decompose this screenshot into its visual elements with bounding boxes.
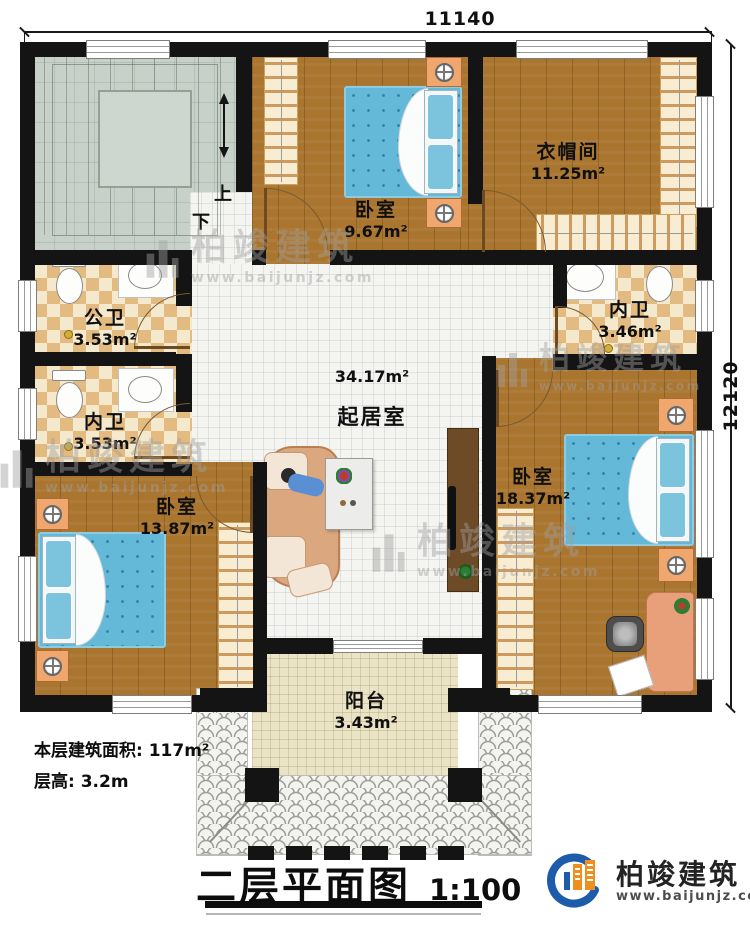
tv-screen [448,486,456,550]
sliding-door [333,640,423,653]
window [695,430,714,558]
door-leaf [482,190,485,252]
sink-basin [566,262,604,292]
wardrobe [536,214,696,251]
room-area: 34.17m² [335,368,409,386]
wall-segment [20,462,176,476]
wall-segment [448,688,510,712]
pillow [427,144,454,190]
title-underline-thick [205,901,482,908]
sink-basin [128,376,162,403]
wall-segment [253,476,267,695]
wall-segment [423,638,496,654]
room-name: 卧室 [355,200,397,222]
toilet-bowl [56,268,83,304]
room-label-inner-bath-left: 内卫 3.53m² [45,412,165,453]
door-leaf [496,370,499,427]
floor-info: 本层建筑面积: 117m² 层高: 3.2m [34,736,209,797]
room-name: 阳台 [345,691,387,713]
room-area: 9.67m² [344,223,407,241]
dimension-top-value: 11140 [420,8,500,30]
lamp-icon [43,657,62,676]
window [538,695,642,714]
wardrobe [218,522,255,690]
table-knob [350,500,356,506]
floor-drain [604,344,613,353]
toilet-tank [52,370,86,381]
wardrobe [497,508,534,690]
desk-plant [674,598,690,614]
brand-url: www.baijunjz.com [616,889,750,904]
brand-name: 柏竣建筑 [616,860,750,889]
window [18,388,37,440]
title-underline-thin [206,913,481,915]
sink-basin [128,262,162,289]
room-name: 起居室 [338,405,407,429]
window [695,96,714,208]
toilet-bowl [646,266,673,302]
room-area: 3.46m² [598,323,661,341]
floor-area-text: 本层建筑面积: 117m² [34,736,209,767]
window [328,40,426,59]
wall-segment [252,250,266,265]
window [86,40,170,59]
window [112,695,192,714]
stairs-down-label: 下 [192,208,210,234]
room-label-inner-bath-right: 内卫 3.46m² [570,300,690,341]
room-label-bedroom-left: 卧室 13.87m² [107,497,247,538]
dimension-ext-line [711,31,712,43]
door-leaf [250,476,253,533]
nightstand [658,398,694,432]
wall-segment [468,42,483,204]
table-knob [340,500,346,506]
stair-landing [98,90,192,188]
wall-segment [253,638,333,654]
office-chair-seat [613,622,637,646]
room-name: 衣帽间 [536,142,599,164]
window [695,280,714,332]
nightstand [426,57,462,87]
window [18,556,37,642]
room-area: 3.53m² [73,331,136,349]
nightstand [36,650,69,682]
room-name: 内卫 [84,412,126,434]
wall-segment [553,252,567,308]
pillow [45,540,72,588]
room-label-cloakroom: 衣帽间 11.25m² [498,142,638,183]
nightstand [658,548,694,582]
wardrobe [264,57,298,185]
brand-logo: 柏竣建筑 www.baijunjz.com [542,852,750,912]
room-label-bedroom-top: 卧室 9.67m² [306,200,446,241]
flower-vase [336,468,352,484]
room-area: 18.37m² [496,490,570,508]
floor-height-text: 层高: 3.2m [34,767,209,798]
floor-plan: 上 下 [0,0,750,925]
nightstand [36,498,69,530]
dimension-top-line [24,31,712,33]
lamp-icon [667,406,686,425]
pillow [427,94,454,140]
dimension-ext-line [24,31,25,43]
wall-segment [482,250,712,265]
room-name: 卧室 [156,497,198,519]
pillow [659,442,686,488]
pillow [45,592,72,640]
wall-segment [20,250,192,265]
door-leaf [134,456,190,459]
stairs-up-label: 上 [214,180,232,206]
lamp-icon [43,505,62,524]
stair-break-arrow-down [219,147,229,163]
wall-segment [553,354,712,370]
wall-segment [330,250,482,265]
balcony-column [448,768,482,802]
room-area: 3.43m² [334,714,397,732]
plant [458,564,473,579]
balcony-column [245,768,279,802]
living-floor-upper [186,252,553,372]
room-label-balcony: 阳台 3.43m² [296,691,436,732]
lamp-icon [667,556,686,575]
brand-logo-icon [542,852,608,912]
room-area: 11.25m² [531,165,605,183]
room-name: 公卫 [84,308,126,330]
room-label-bedroom-right: 卧室 18.37m² [463,467,603,508]
window [516,40,648,59]
wall-segment [20,352,176,366]
room-name: 内卫 [609,300,651,322]
room-area: 13.87m² [140,520,214,538]
room-label-living: 34.17m² 起居室 [302,368,442,430]
room-label-public-bath: 公卫 3.53m² [45,308,165,349]
room-name: 卧室 [512,467,554,489]
brand-text: 柏竣建筑 www.baijunjz.com [616,860,750,904]
wall-segment [253,462,267,476]
door-leaf [555,306,558,354]
window [18,280,37,332]
wall-segment [236,42,252,192]
room-area: 3.53m² [73,435,136,453]
lamp-icon [435,63,454,82]
window [695,598,714,680]
stair-break-line [223,99,225,147]
pillow [659,492,686,538]
door-leaf [264,188,267,250]
dimension-right-value: 12120 [720,356,742,436]
wardrobe [660,57,697,227]
wall-segment [176,464,192,476]
